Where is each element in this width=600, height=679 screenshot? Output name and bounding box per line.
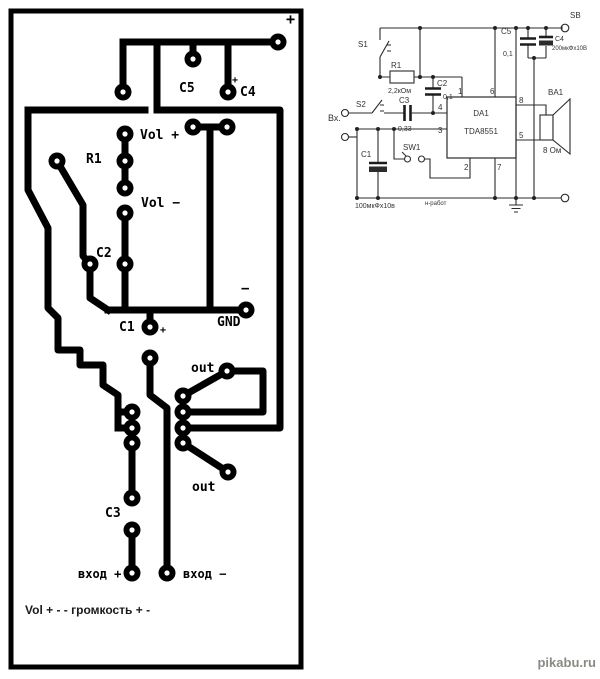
sb-label: SB (570, 11, 581, 20)
speaker-coil (540, 115, 553, 140)
gnd-terminal (561, 194, 569, 202)
pin-4: 4 (438, 103, 443, 112)
screenshot-root: + C5 + C4 Vol + R1 Vol − C2 − C1 + GND o… (0, 0, 600, 679)
c2-value: 0,1 (443, 94, 453, 101)
pcb-r1-label: R1 (86, 152, 102, 167)
pin-8: 8 (519, 96, 524, 105)
schematic: SB S1 S2 R1 2,2кОм C2 0,1 C3 0,33 C1 100… (328, 11, 587, 212)
pcb-c4-label: C4 (240, 85, 256, 100)
c5-label: C5 (501, 27, 512, 36)
pcb-minus-label: − (241, 281, 249, 297)
pcb-gnd-label: GND (217, 315, 241, 330)
pcb-board: + C5 + C4 Vol + R1 Vol − C2 − C1 + GND o… (11, 10, 301, 667)
watermark: pikabu.ru (537, 655, 596, 670)
c1-value: 100мкФх10в (355, 203, 395, 210)
ground-symbol (509, 198, 523, 212)
c1-label: C1 (361, 150, 372, 159)
c1-capacitor (369, 167, 387, 173)
c5-capacitor (520, 39, 536, 45)
da1-part-label: TDA8551 (464, 127, 498, 136)
pcb-input-minus-label: вход − (183, 567, 226, 581)
c4-capacitor (539, 41, 553, 46)
r1-resistor (390, 71, 414, 83)
pcb-c4-plus-label: + (232, 75, 238, 86)
sw1-contact-right (419, 156, 425, 162)
input-terminal-plus (342, 110, 349, 117)
pcb-and-schematic-figure: + C5 + C4 Vol + R1 Vol − C2 − C1 + GND o… (0, 0, 600, 679)
r1-label: R1 (391, 61, 402, 70)
c4-label: C4 (555, 36, 564, 43)
da1-label: DA1 (473, 109, 489, 118)
sw1-contact-left (405, 156, 411, 162)
r1-value: 2,2кОм (388, 88, 411, 95)
pcb-c1-plus-label: + (160, 325, 166, 336)
pcb-c5-label: C5 (179, 81, 195, 96)
note-label: н-работ (425, 201, 447, 207)
pin-1: 1 (458, 87, 463, 96)
c2-label: C2 (437, 79, 448, 88)
pcb-plus-label: + (286, 10, 295, 28)
pin-3: 3 (438, 126, 443, 135)
pin-5: 5 (519, 131, 524, 140)
sw1-label: SW1 (403, 143, 421, 152)
s2-label: S2 (356, 100, 366, 109)
input-terminal-minus (342, 134, 349, 141)
pcb-out-bottom-label: out (192, 480, 215, 495)
pcb-vol-minus-label: Vol − (141, 196, 180, 211)
ba1-label: BA1 (548, 88, 564, 97)
pcb-c2-label: C2 (96, 246, 112, 261)
input-label: Вх. (328, 113, 341, 123)
pin-2: 2 (464, 163, 469, 172)
c3-label: C3 (399, 96, 410, 105)
pin-7: 7 (497, 163, 502, 172)
pcb-c3-label: C3 (105, 506, 121, 521)
c3-value: 0,33 (398, 126, 412, 133)
pcb-input-plus-label: вход + (78, 567, 121, 581)
c5-value: 0,1 (503, 51, 513, 58)
c4-value: 200мкФх10В (552, 46, 587, 52)
c2-capacitor (425, 89, 441, 95)
pcb-vol-plus-label: Vol + (140, 128, 179, 143)
s1-label: S1 (358, 40, 368, 49)
ba1-value: 8 Ом (543, 146, 561, 155)
pcb-c1-label: C1 (119, 320, 135, 335)
pcb-out-top-label: out (191, 361, 214, 376)
pin-6: 6 (490, 87, 495, 96)
pcb-caption: Vol + - - громкость + - (25, 603, 150, 617)
c3-capacitor (405, 105, 411, 121)
s1-switch-blade (380, 41, 389, 57)
